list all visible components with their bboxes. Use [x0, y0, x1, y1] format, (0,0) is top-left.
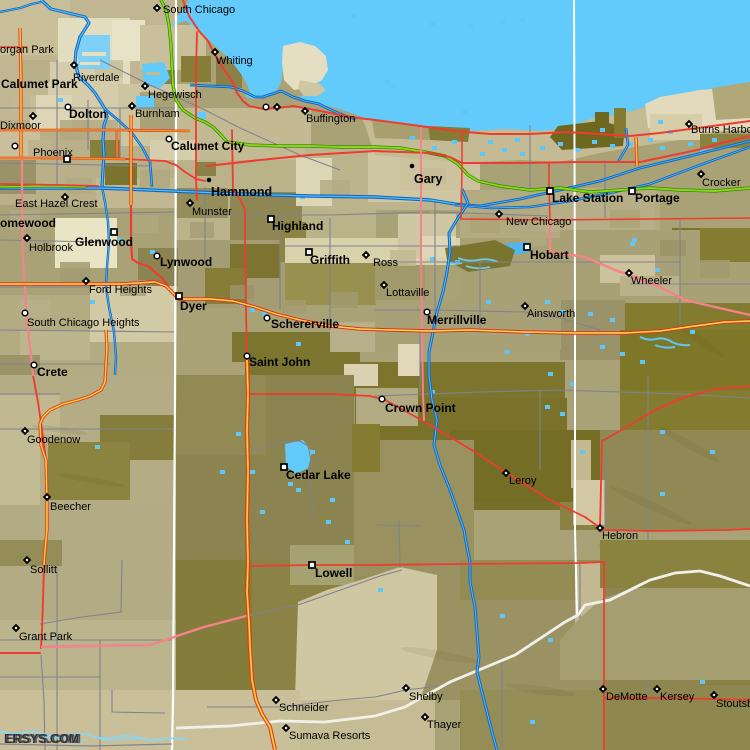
svg-text:Munster: Munster	[192, 206, 232, 218]
svg-text:New Chicago: New Chicago	[506, 216, 571, 228]
svg-text:Glenwood: Glenwood	[75, 235, 133, 249]
svg-text:Griffith: Griffith	[310, 253, 350, 267]
svg-text:DeMotte: DeMotte	[606, 691, 648, 703]
svg-text:Hobart: Hobart	[530, 248, 569, 262]
svg-text:Crocker: Crocker	[702, 177, 741, 189]
svg-text:Ford Heights: Ford Heights	[89, 284, 152, 296]
svg-text:Thayer: Thayer	[427, 719, 462, 731]
svg-text:Dyer: Dyer	[180, 299, 207, 313]
svg-text:Shelby: Shelby	[409, 691, 443, 703]
svg-text:Burns Harbor: Burns Harbor	[691, 124, 750, 136]
svg-text:Lynwood: Lynwood	[160, 255, 212, 269]
svg-text:East Hazel Crest: East Hazel Crest	[15, 198, 98, 210]
svg-text:ERSYS.COM: ERSYS.COM	[6, 732, 81, 746]
svg-text:Calumet City: Calumet City	[171, 139, 245, 153]
svg-text:Crown Point: Crown Point	[385, 401, 456, 415]
svg-text:Saint John: Saint John	[249, 355, 310, 369]
svg-text:Wheeler: Wheeler	[631, 275, 672, 287]
svg-text:Highland: Highland	[272, 219, 323, 233]
svg-text:Grant Park: Grant Park	[19, 631, 73, 643]
svg-text:Holbrook: Holbrook	[29, 242, 74, 254]
svg-text:Sollitt: Sollitt	[30, 564, 57, 576]
svg-text:Beecher: Beecher	[50, 501, 91, 513]
svg-text:South Chicago Heights: South Chicago Heights	[27, 317, 140, 329]
svg-text:Merrillville: Merrillville	[427, 313, 487, 327]
svg-text:Ross: Ross	[373, 257, 399, 269]
svg-text:Goodenow: Goodenow	[27, 434, 80, 446]
svg-text:Ainsworth: Ainsworth	[527, 308, 575, 320]
svg-text:Hebron: Hebron	[602, 530, 638, 542]
svg-text:Calumet Park: Calumet Park	[1, 77, 78, 91]
svg-text:Phoenix: Phoenix	[33, 147, 73, 159]
svg-text:Burnham: Burnham	[135, 108, 180, 120]
svg-text:Dolton: Dolton	[69, 107, 107, 121]
svg-text:Crete: Crete	[37, 365, 68, 379]
svg-text:Portage: Portage	[635, 191, 680, 205]
svg-text:omewood: omewood	[0, 216, 56, 230]
svg-text:Hammond: Hammond	[211, 185, 272, 199]
svg-text:South Chicago: South Chicago	[163, 4, 235, 16]
svg-text:Lake Station: Lake Station	[552, 191, 623, 205]
svg-text:Cedar Lake: Cedar Lake	[286, 468, 351, 482]
svg-text:Kersey: Kersey	[660, 691, 695, 703]
svg-text:Stoutsburg: Stoutsburg	[716, 698, 750, 710]
svg-text:Schneider: Schneider	[279, 702, 329, 714]
svg-text:Hegewisch: Hegewisch	[148, 89, 202, 101]
svg-text:Riverdale: Riverdale	[73, 72, 119, 84]
svg-text:Dixmoor: Dixmoor	[0, 120, 41, 132]
svg-text:Lottaville: Lottaville	[386, 287, 429, 299]
svg-text:Gary: Gary	[414, 172, 443, 186]
svg-text:Buffington: Buffington	[306, 113, 355, 125]
svg-text:Lowell: Lowell	[315, 566, 352, 580]
svg-text:Sumava Resorts: Sumava Resorts	[289, 730, 371, 742]
svg-text:Schererville: Schererville	[271, 317, 339, 331]
svg-text:Leroy: Leroy	[509, 475, 537, 487]
svg-text:Whiting: Whiting	[216, 55, 253, 67]
svg-text:organ Park: organ Park	[0, 44, 54, 56]
